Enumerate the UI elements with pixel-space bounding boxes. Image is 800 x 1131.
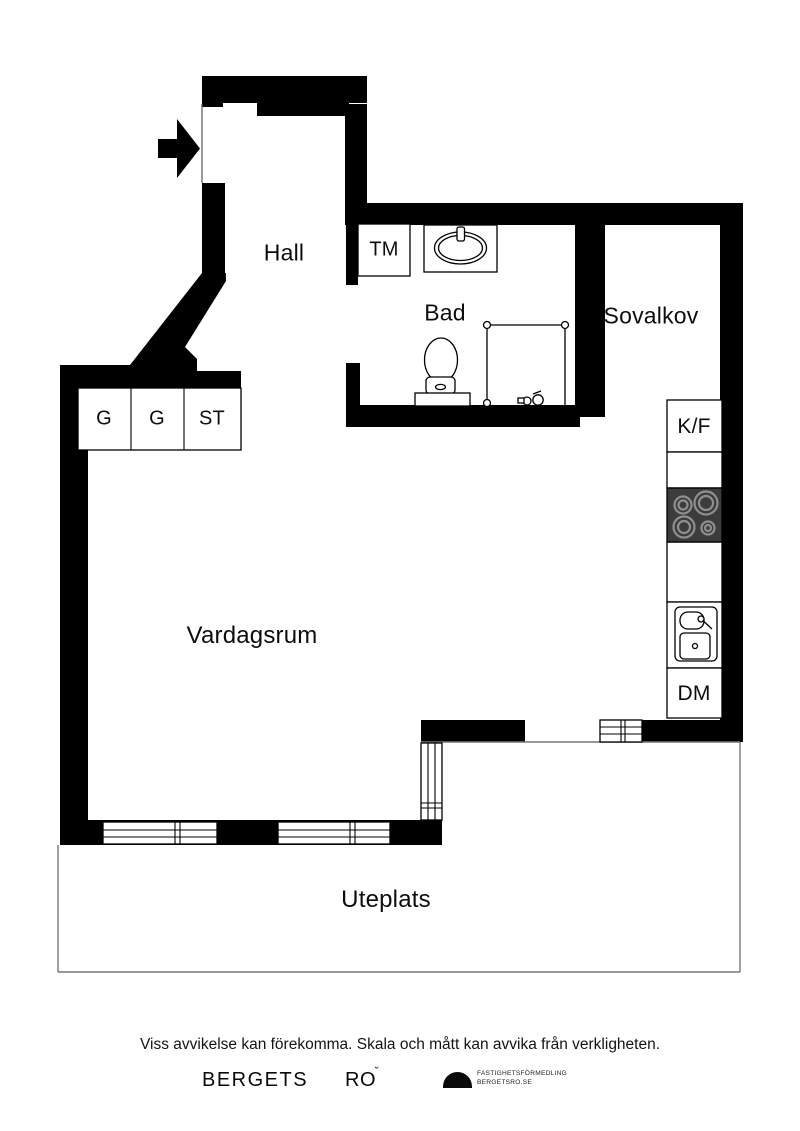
label-closet-1: G bbox=[96, 408, 112, 431]
window-icon bbox=[421, 743, 442, 820]
shower-icon bbox=[484, 322, 569, 407]
agency-line-2: BERGETSRO.SE bbox=[477, 1079, 567, 1088]
room-label-vardagsrum: Vardagsrum bbox=[187, 622, 318, 650]
floorplan-page: Hall Bad Sovalkov Vardagsrum Uteplats TM… bbox=[0, 0, 800, 1131]
room-label-sovalkov: Sovalkov bbox=[604, 303, 699, 330]
label-closet-3: ST bbox=[199, 408, 225, 431]
label-dishwasher: DM bbox=[677, 682, 710, 706]
room-label-bad: Bad bbox=[424, 300, 466, 327]
agency-text: FASTIGHETSFÖRMEDLING BERGETSRO.SE bbox=[477, 1070, 567, 1087]
brand-breve-mark: ˘ bbox=[375, 1066, 379, 1078]
toilet-icon bbox=[415, 338, 470, 406]
brand-wordmark-bergets: BERGETS bbox=[202, 1069, 308, 1092]
bathroom-sink-icon bbox=[424, 225, 497, 272]
window-icon bbox=[600, 720, 642, 742]
uteplats-boundary bbox=[58, 742, 740, 972]
label-washing-machine: TM bbox=[369, 239, 398, 262]
agency-line-1: FASTIGHETSFÖRMEDLING bbox=[477, 1070, 567, 1079]
room-label-uteplats: Uteplats bbox=[341, 886, 431, 914]
window-icon bbox=[103, 822, 217, 844]
label-closet-2: G bbox=[149, 408, 165, 431]
entry-arrow-icon bbox=[158, 119, 200, 178]
floorplan-drawing bbox=[0, 0, 800, 1131]
kitchen-units bbox=[667, 400, 722, 718]
room-label-hall: Hall bbox=[264, 240, 304, 267]
stove-icon bbox=[667, 488, 722, 542]
label-fridge-freezer: K/F bbox=[677, 415, 710, 439]
brand-wordmark-ro: RO bbox=[345, 1069, 376, 1092]
window-icon bbox=[278, 822, 390, 844]
disclaimer-text: Viss avvikelse kan förekomma. Skala och … bbox=[0, 1036, 800, 1054]
